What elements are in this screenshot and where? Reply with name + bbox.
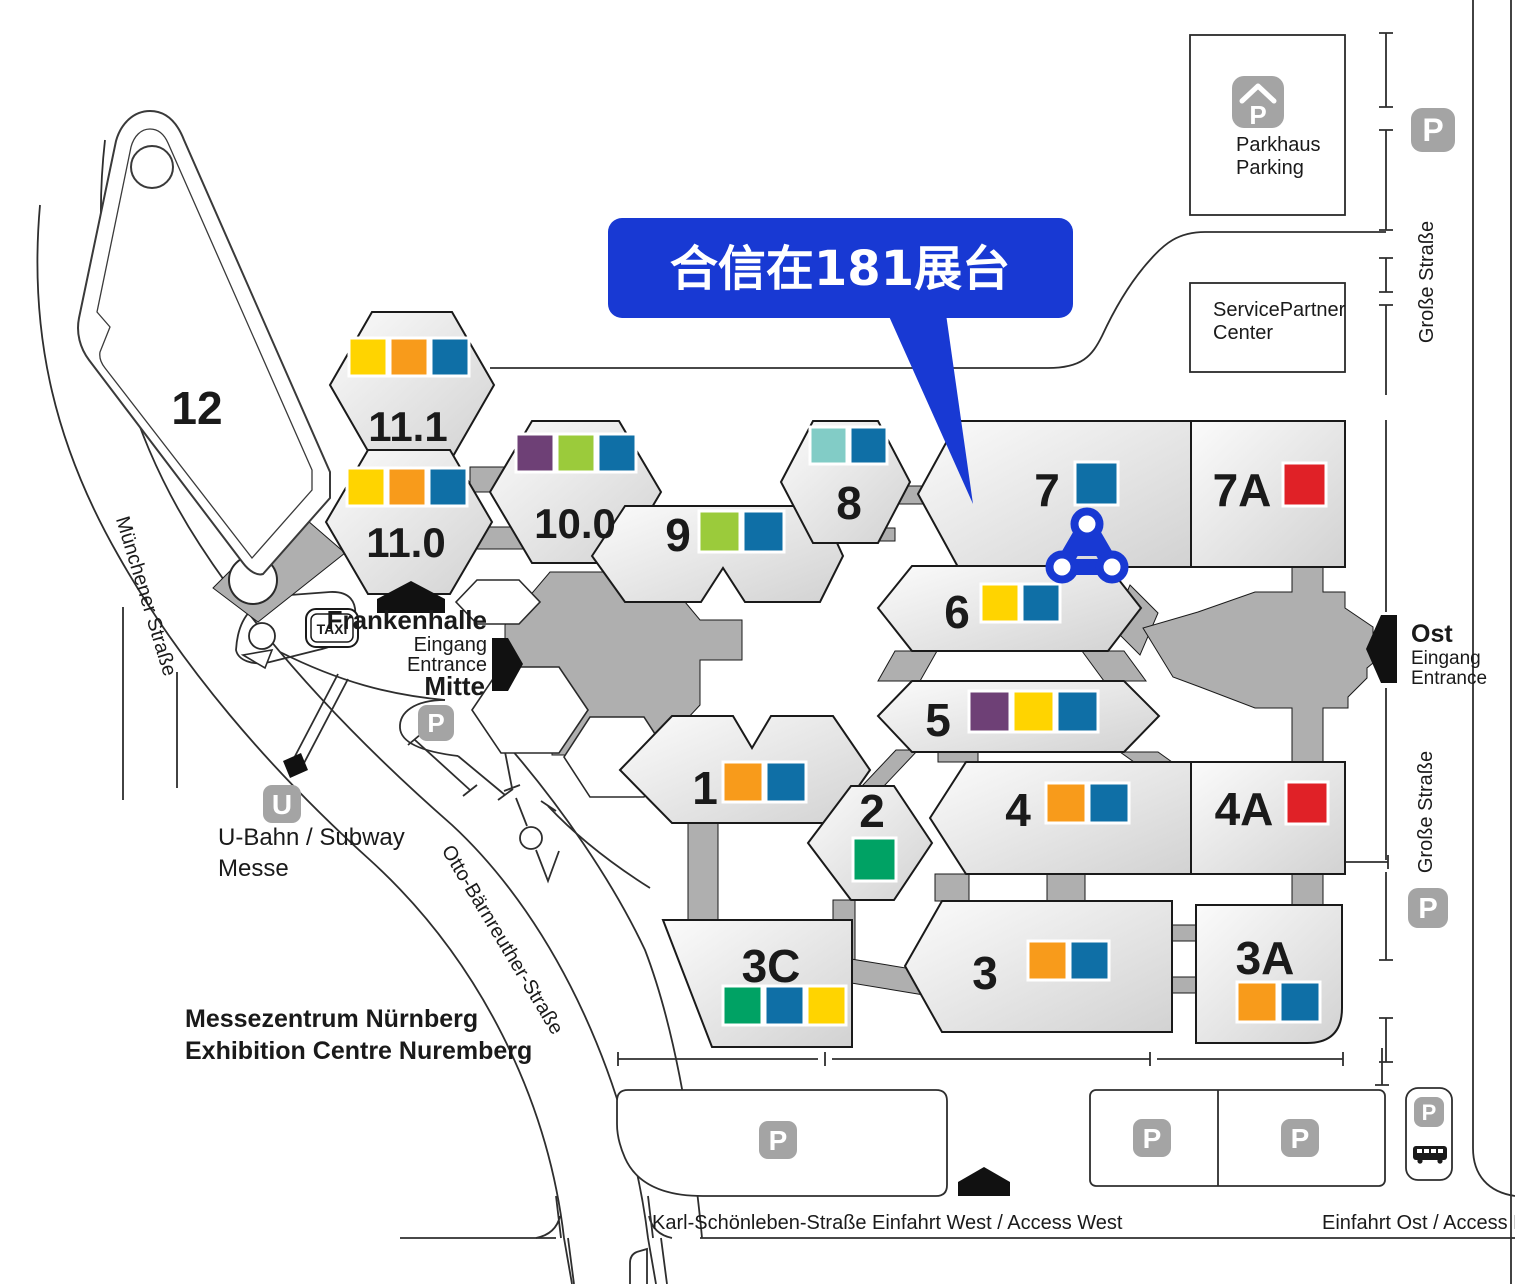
street-label-grosse-north: Große Straße xyxy=(1416,221,1438,343)
hall-6-label: 6 xyxy=(944,586,970,638)
parking-icon-grosse-south: P xyxy=(1408,888,1448,928)
hall-7a-chips xyxy=(1283,463,1326,506)
map-title-en: Exhibition Centre Nuremberg xyxy=(185,1037,532,1065)
hall-10.0-label: 10.0 xyxy=(534,500,616,547)
street-label-grosse-south: Große Straße xyxy=(1415,751,1437,873)
hall-11.0-chips xyxy=(347,468,467,506)
mitte-label: Mitte xyxy=(424,671,485,701)
connector-6-5-west xyxy=(878,651,937,681)
traffic-island xyxy=(243,650,272,668)
hall-8-chips xyxy=(810,427,887,464)
entrance-west-label: Einfahrt West / Access West xyxy=(872,1212,1123,1234)
servicepartner-label-2: Center xyxy=(1213,322,1273,344)
hall-12: 12 xyxy=(78,111,330,574)
callout-text: 合信在181展台 xyxy=(670,241,1010,297)
hall-11.0-label: 11.0 xyxy=(366,519,445,566)
parking-icon-bus-lot: P xyxy=(1414,1097,1444,1127)
subway-icon: U xyxy=(263,785,301,823)
hall-10.0-chips xyxy=(516,434,636,472)
ubahn-station-marker xyxy=(283,753,308,778)
servicepartner-label-1: ServicePartner xyxy=(1213,299,1346,321)
hall-5-chips xyxy=(969,691,1098,732)
svg-text:P: P xyxy=(1418,893,1437,925)
entrance-east-label: Einfahrt Ost / Access East xyxy=(1322,1212,1515,1234)
ost-entrance-label: Entrance xyxy=(1411,668,1487,689)
parking-icon-grosse-north: P xyxy=(1411,108,1455,152)
hall-11.1-label: 11.1 xyxy=(368,403,447,450)
mitte-eingang-label: Eingang xyxy=(414,634,487,656)
hall-1-chips xyxy=(723,762,806,802)
hall-12-circle xyxy=(131,146,173,188)
hall-11.1-chips xyxy=(349,338,469,376)
hall-2-label: 2 xyxy=(859,785,885,837)
hall-5-label: 5 xyxy=(925,694,951,746)
ost-label: Ost xyxy=(1411,620,1453,648)
connector-3-3a-top xyxy=(1172,925,1196,941)
svg-text:P: P xyxy=(427,708,444,738)
exhibition-map: 12 11.1 11.0 10.0 9 8 7 7A 6 5 4 4A 1 2 … xyxy=(0,0,1515,1284)
svg-text:U: U xyxy=(272,789,292,820)
hall-3-chips xyxy=(1028,941,1109,980)
connector-5-4-east xyxy=(1120,752,1172,762)
parking-icon-mitte: P xyxy=(418,705,454,741)
road-intersection xyxy=(536,1196,672,1284)
frankenhalle-label: Frankenhalle xyxy=(327,605,487,635)
parking-icon-lot-east-a: P xyxy=(1133,1119,1171,1157)
parkhaus-icon-letter: P xyxy=(1249,100,1266,130)
parkhaus-label-en: Parking xyxy=(1236,157,1304,179)
hall-9-chips xyxy=(699,511,784,552)
parkhaus-box: P Parkhaus Parking xyxy=(1190,35,1345,215)
connector-2-5 xyxy=(862,750,918,786)
roundabout xyxy=(520,827,542,849)
svg-text:P: P xyxy=(769,1125,788,1156)
connector-4-3-west xyxy=(935,874,969,901)
ost-eingang-label: Eingang xyxy=(1411,648,1481,669)
parking-icon-lot-west: P xyxy=(759,1121,797,1159)
svg-text:P: P xyxy=(1422,112,1443,148)
hall-6-chips xyxy=(981,584,1060,622)
parking-icon-lot-east-b: P xyxy=(1281,1119,1319,1157)
connector-4a-3a xyxy=(1292,874,1323,905)
ubahn-track xyxy=(283,674,348,778)
connector-3-3a-bottom xyxy=(1172,977,1196,993)
hall-4-chips xyxy=(1046,783,1129,823)
hall-4-label: 4 xyxy=(1005,784,1031,836)
street-label-muenchener: Münchener Straße xyxy=(111,514,180,679)
road-arrowhead xyxy=(536,850,559,881)
connector-5-4-west xyxy=(938,752,978,762)
hall-8-label: 8 xyxy=(836,477,862,529)
hall-7-chips xyxy=(1075,462,1118,505)
svg-text:P: P xyxy=(1422,1100,1437,1125)
hall-3c-chips xyxy=(723,986,846,1025)
west-entrance-arrow-icon xyxy=(958,1167,1010,1196)
parkhaus-label-de: Parkhaus xyxy=(1236,134,1321,156)
connector-6-5-east xyxy=(1082,651,1146,681)
hall-3a-chips xyxy=(1237,982,1320,1022)
hall-3c-label: 3C xyxy=(742,940,801,992)
hall-4a-label: 4A xyxy=(1215,783,1274,835)
map-title-de: Messezentrum Nürnberg xyxy=(185,1005,478,1033)
connector-4-3-east xyxy=(1047,874,1085,901)
road-grosse-inner xyxy=(1473,0,1515,1196)
hall-7a-label: 7A xyxy=(1213,464,1272,516)
servicepartner-box: ServicePartner Center xyxy=(1190,283,1346,372)
street-label-karl: Karl-Schönleben-Straße xyxy=(652,1212,867,1234)
hall-1-label: 1 xyxy=(692,762,718,814)
hall-9-label: 9 xyxy=(665,509,691,561)
hall-3a-label: 3A xyxy=(1236,932,1295,984)
subway-label-1: U-Bahn / Subway xyxy=(218,824,405,851)
connector-1-3c xyxy=(688,823,718,920)
hall-4a-chips xyxy=(1286,782,1328,824)
hall-12-label: 12 xyxy=(171,382,222,434)
loop-circle xyxy=(249,623,275,649)
hall-7-label: 7 xyxy=(1034,464,1060,516)
svg-text:P: P xyxy=(1291,1123,1310,1154)
subway-label-2: Messe xyxy=(218,855,289,882)
ost-service-building xyxy=(1143,567,1373,762)
hall-2-chips xyxy=(853,838,896,881)
hall-3-label: 3 xyxy=(972,947,998,999)
svg-text:P: P xyxy=(1143,1123,1162,1154)
